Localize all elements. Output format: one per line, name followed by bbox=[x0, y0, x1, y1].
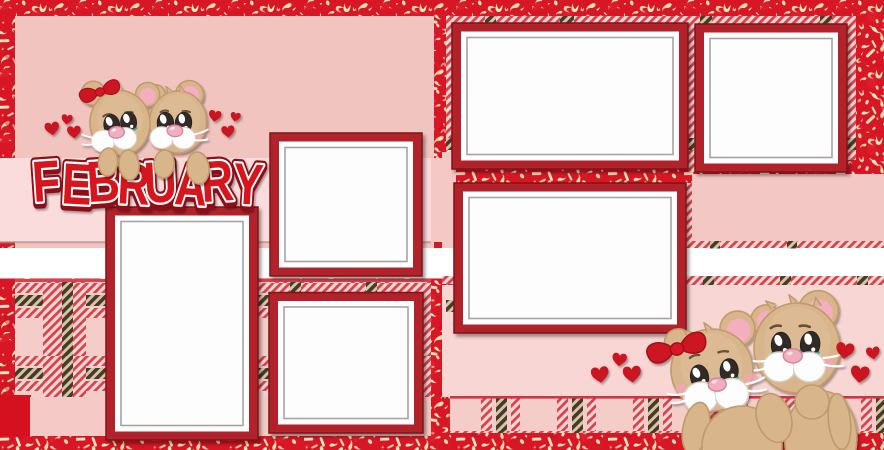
svg-text:Y: Y bbox=[231, 152, 266, 219]
svg-text:F: F bbox=[30, 149, 62, 215]
